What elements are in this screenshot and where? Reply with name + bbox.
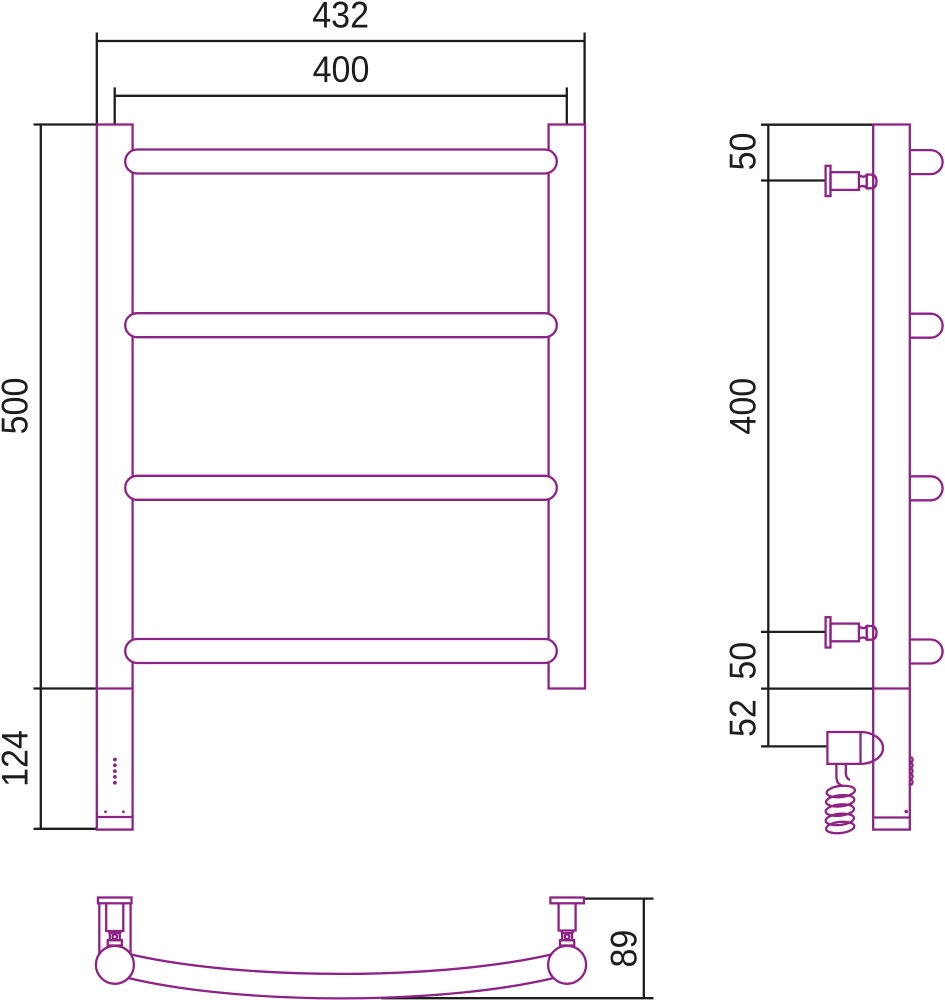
svg-text:50: 50 [722, 642, 764, 680]
svg-text:400: 400 [722, 378, 764, 435]
svg-text:500: 500 [0, 378, 36, 435]
svg-text:50: 50 [722, 133, 764, 171]
svg-text:124: 124 [0, 730, 36, 787]
svg-text:89: 89 [603, 930, 645, 968]
svg-text:432: 432 [312, 0, 369, 36]
svg-text:400: 400 [313, 49, 370, 91]
svg-text:52: 52 [722, 699, 764, 737]
